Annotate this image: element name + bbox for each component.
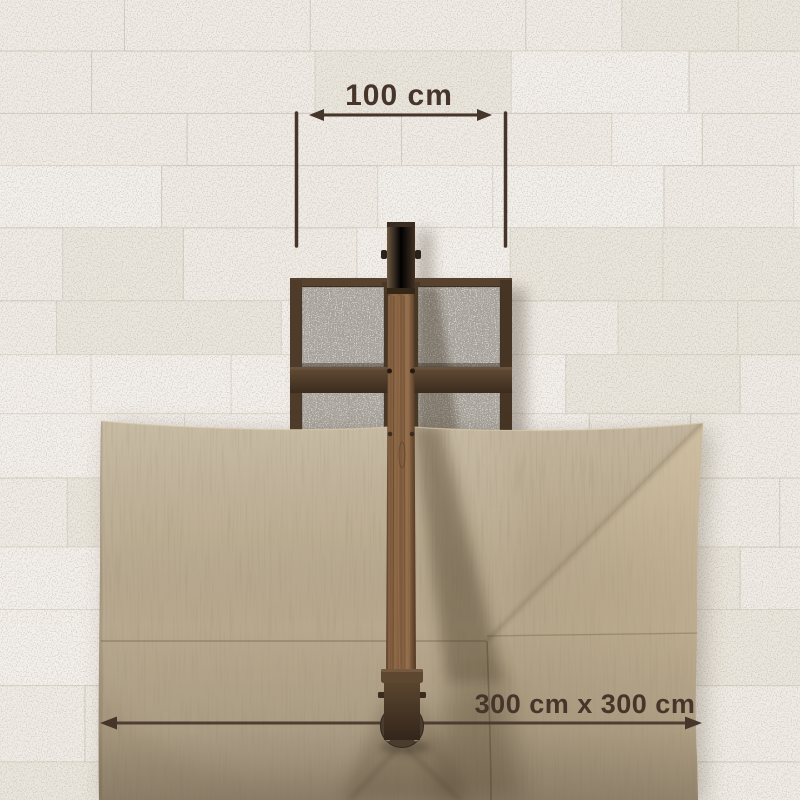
product-dimension-image: 100 cm bbox=[0, 0, 800, 800]
pole-wood-shaft bbox=[386, 294, 416, 676]
canopy-size-label: 300 cm x 300 cm bbox=[475, 689, 696, 719]
pole-bolt bbox=[410, 432, 415, 437]
cap-bolt-right bbox=[415, 250, 421, 259]
bracket-collar-highlight bbox=[381, 669, 423, 672]
cap-top-edge bbox=[387, 222, 415, 227]
pole-bolt bbox=[387, 369, 392, 374]
base-frame-right-flange bbox=[500, 280, 512, 430]
scene-canvas: 100 cm bbox=[0, 0, 800, 800]
cap-bottom-band bbox=[387, 288, 415, 294]
pole-top-cap bbox=[387, 222, 415, 294]
bracket-pivot-right bbox=[419, 692, 426, 698]
cap-bolt-left bbox=[381, 250, 387, 259]
pole-bottom-bracket bbox=[384, 682, 420, 740]
base-width-label: 100 cm bbox=[345, 79, 453, 112]
pole-bolt bbox=[388, 432, 393, 437]
base-frame-left-flange bbox=[290, 280, 302, 430]
pole-bolt bbox=[410, 369, 415, 374]
bracket-pivot-left bbox=[378, 692, 385, 698]
